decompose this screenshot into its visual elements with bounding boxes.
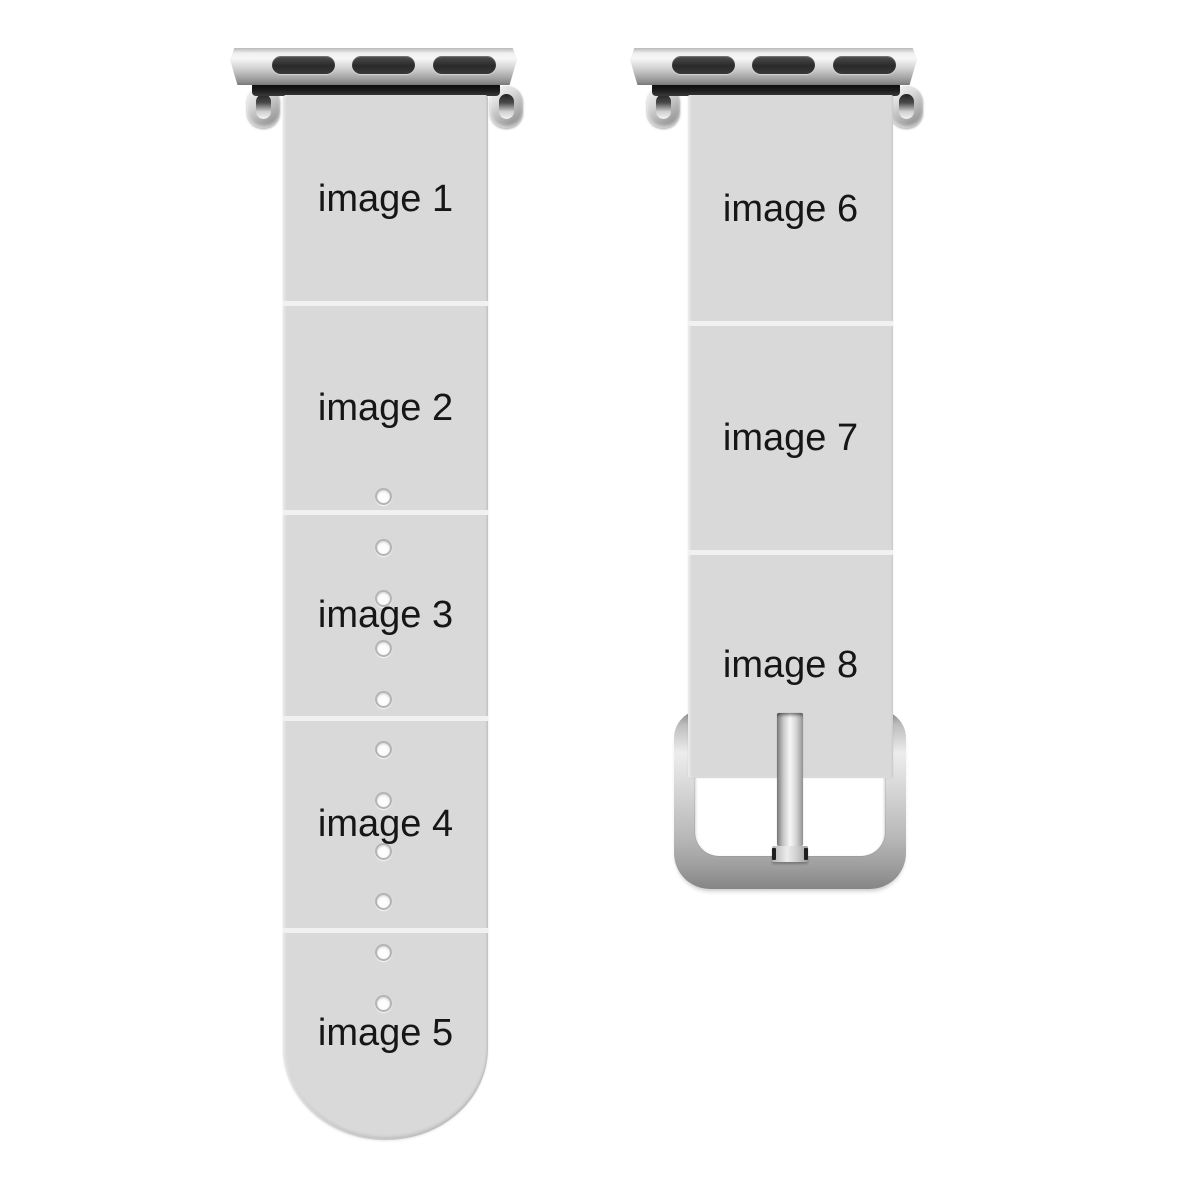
strap-segment: image 4 [283, 718, 488, 930]
hook-hole [899, 94, 914, 119]
canvas: image 1 image 2 image 3 image 4 image 5 [0, 0, 1200, 1200]
strap-segment: image 3 [283, 512, 488, 718]
adapter-slot-icon [833, 56, 896, 74]
segment-label: image 4 [318, 805, 453, 843]
hook-hole [656, 94, 671, 119]
segment-label: image 7 [723, 419, 858, 457]
segment-label: image 6 [723, 190, 858, 228]
strap-segment: image 2 [283, 303, 488, 512]
strap-with-buckle: image 6 image 7 image 8 [688, 95, 893, 778]
segment-label: image 8 [723, 646, 858, 684]
adapter-slot-icon [433, 56, 496, 74]
strap-with-holes: image 1 image 2 image 3 image 4 image 5 [283, 95, 488, 1140]
adapter-slot-icon [672, 56, 735, 74]
hook-hole [499, 94, 514, 119]
strap-segment: image 5 [283, 930, 488, 1135]
adapter-slot-icon [752, 56, 815, 74]
adapter-slot-icon [352, 56, 415, 74]
segment-label: image 1 [318, 180, 453, 218]
watch-lug-adapter [630, 48, 917, 85]
hook-hole [256, 94, 271, 119]
watch-lug-adapter [230, 48, 517, 85]
buckle-tongue-tip [772, 846, 808, 862]
segment-label: image 3 [318, 596, 453, 634]
strap-segment: image 1 [283, 95, 488, 303]
tongue-notch [772, 848, 776, 860]
segment-label: image 5 [318, 1014, 453, 1052]
buckle-tongue [777, 713, 803, 846]
strap-segment: image 7 [688, 323, 893, 552]
segment-label: image 2 [318, 389, 453, 427]
strap-segment: image 6 [688, 95, 893, 323]
adapter-slot-icon [272, 56, 335, 74]
tongue-notch [804, 848, 808, 860]
